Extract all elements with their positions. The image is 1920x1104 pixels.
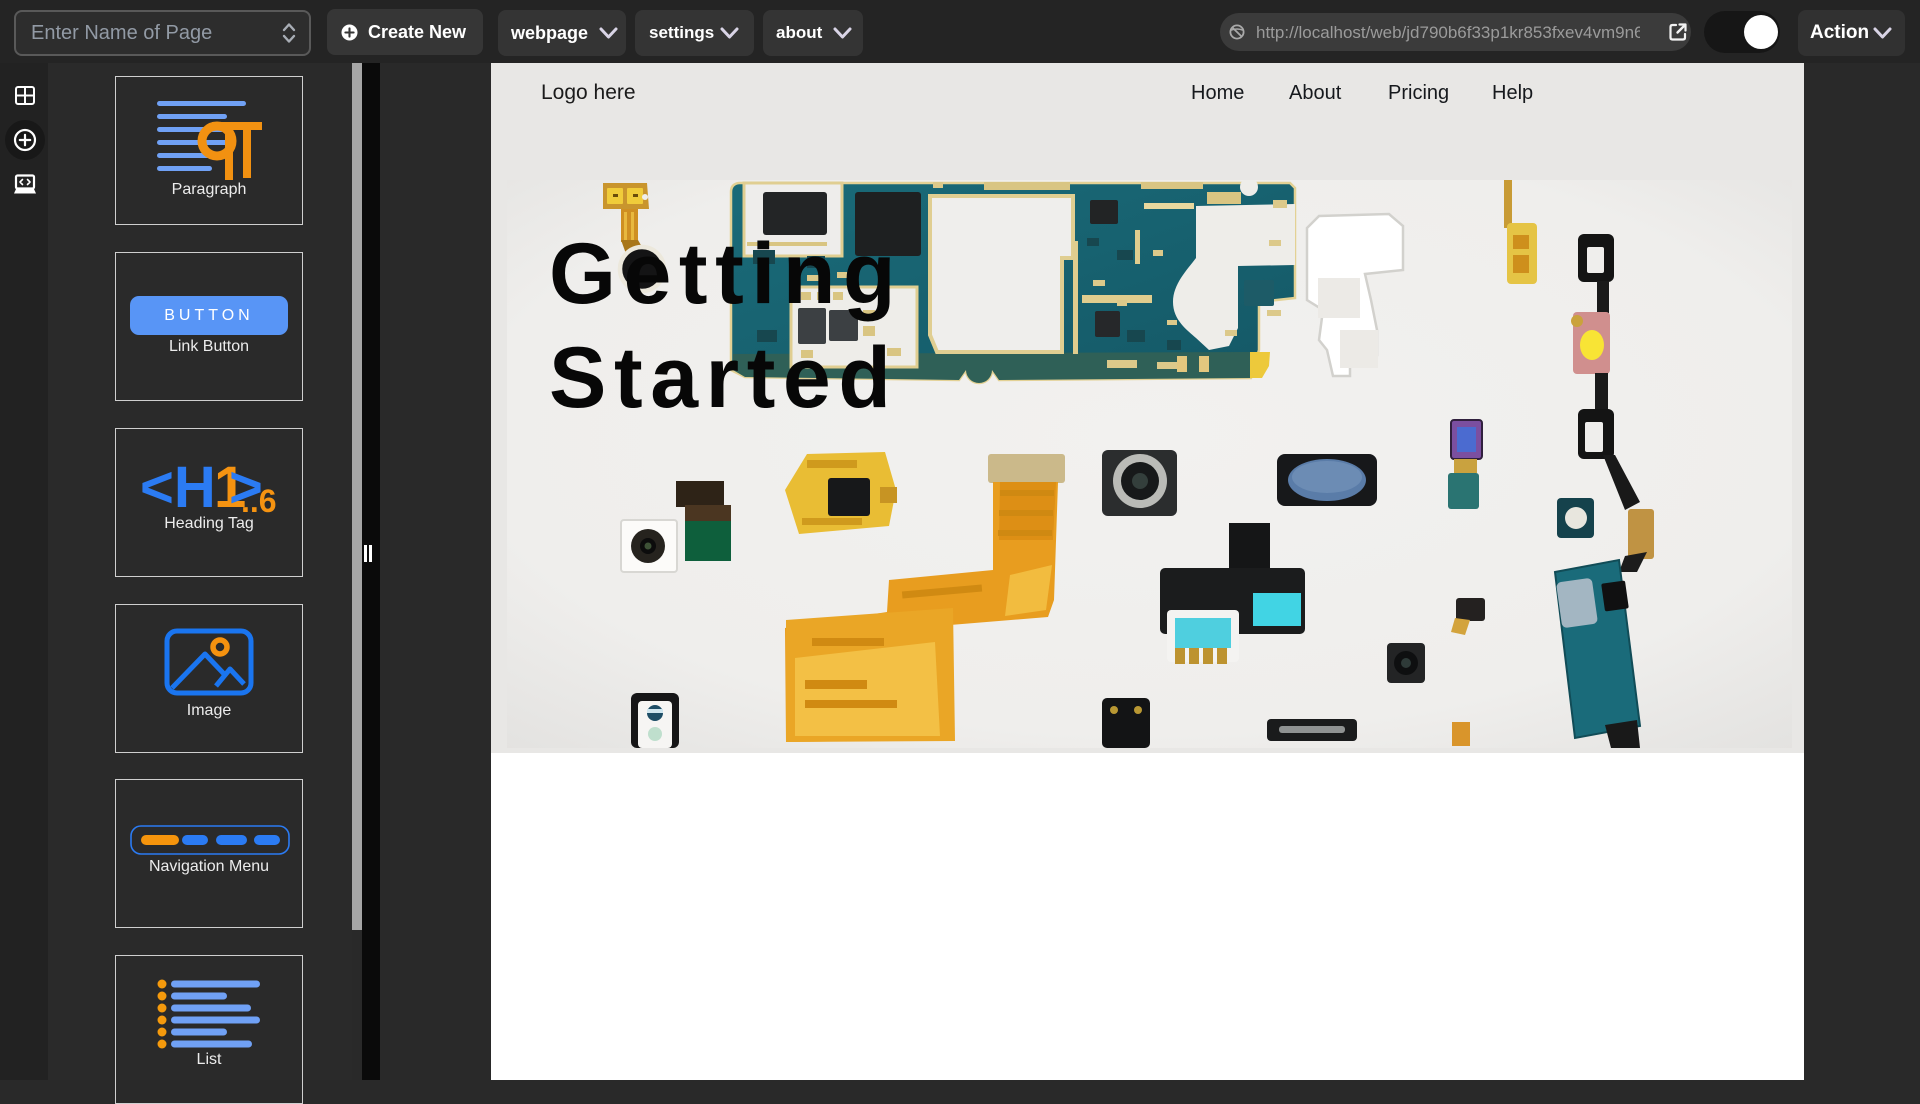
svg-text:<H: <H — [140, 458, 216, 516]
svg-text:..6: ..6 — [241, 483, 277, 516]
